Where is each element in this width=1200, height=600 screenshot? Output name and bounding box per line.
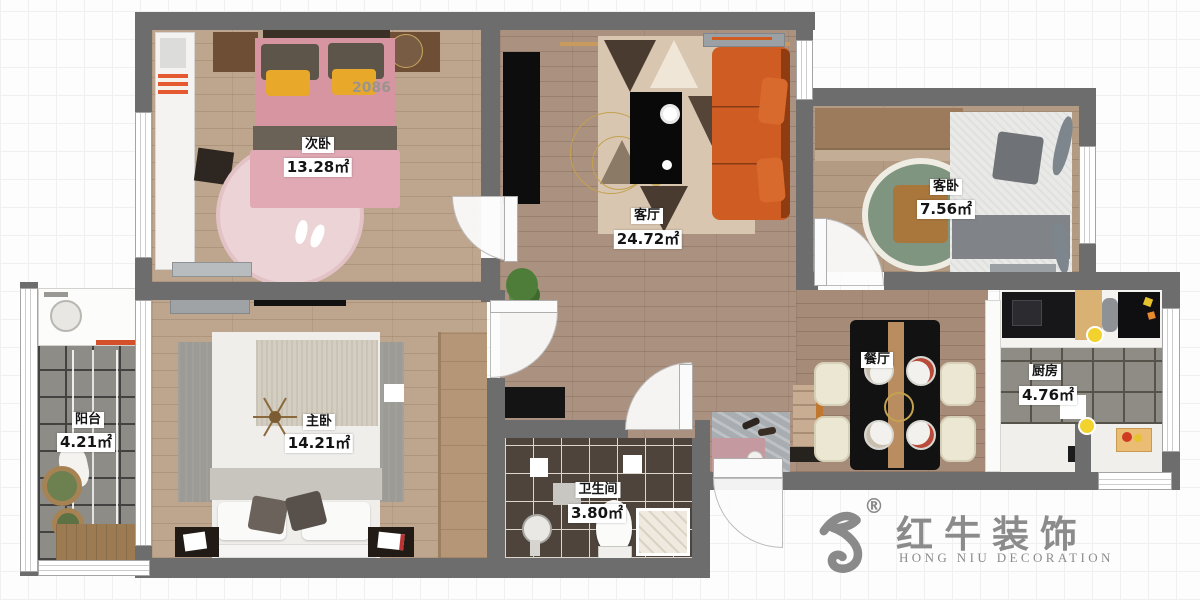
room-area-second-bedroom: 13.28㎡	[284, 158, 352, 177]
guest-desk	[815, 108, 963, 153]
rug-triangle-cream	[650, 40, 698, 88]
cushion-dark	[247, 495, 288, 535]
brand-name-en: HONG NIU DECORATION	[899, 550, 1114, 566]
room-area-kitchen: 4.76㎡	[1019, 386, 1077, 405]
rug-triangle-dark	[604, 40, 656, 92]
sliding-door-marker	[1078, 417, 1096, 435]
wall-bedrooms-sep	[152, 282, 481, 300]
window-balcony-left	[20, 288, 38, 572]
master-wardrobe	[438, 332, 487, 558]
room-area-guest: 7.56㎡	[917, 200, 975, 219]
faucet-icon	[44, 292, 68, 297]
food-icon	[1122, 432, 1132, 442]
white-chip	[384, 384, 404, 402]
wardrobe-box	[160, 38, 186, 68]
bath-mat	[530, 458, 548, 477]
wood-mat	[56, 524, 136, 560]
tv-panel	[503, 52, 540, 204]
door-leaf-master	[490, 300, 558, 313]
hall-plant-icon	[506, 268, 538, 302]
stove-burners	[1012, 300, 1042, 326]
door-leaf-second-bedroom	[504, 196, 518, 262]
book-icon	[183, 532, 207, 552]
wall-bath-top-right	[695, 420, 710, 438]
room-area-balcony: 4.21㎡	[57, 433, 115, 452]
room-label-bathroom: 卫生间	[575, 482, 620, 498]
window-bottom-right	[1098, 472, 1172, 490]
stove-strip	[96, 340, 138, 345]
room-label-guest: 客卧	[930, 179, 962, 195]
entry-door-arc	[713, 478, 783, 548]
dining-chair	[814, 416, 850, 462]
headboard	[218, 544, 376, 558]
window-living	[796, 40, 813, 100]
room-label-second-bedroom: 次卧	[302, 137, 334, 153]
console-accent	[712, 37, 772, 40]
laundry-sink-icon	[50, 300, 82, 332]
sliding-door-marker	[1086, 326, 1104, 344]
book-icon	[377, 532, 405, 551]
window-second-bedroom	[135, 112, 152, 258]
wall-bath-bottom	[498, 558, 710, 578]
room-area-living: 24.72㎡	[614, 230, 682, 249]
door-leaf-guest	[814, 218, 827, 286]
wall-master-left-top-stub	[135, 282, 152, 300]
window-balcony-bottom	[38, 560, 150, 576]
wall-bath-top-left	[498, 420, 628, 438]
room-label-master: 主卧	[303, 414, 335, 430]
guest-pillow	[992, 131, 1044, 185]
room-area-bathroom: 3.80㎡	[568, 504, 626, 523]
centerpiece-ring	[884, 392, 914, 422]
potted-plant-icon	[42, 466, 82, 506]
floor-plan-canvas: 2086	[0, 0, 1200, 600]
room-area-master: 14.21㎡	[285, 434, 353, 453]
room-label-dining: 餐厅	[861, 352, 893, 368]
radiator	[172, 262, 252, 277]
dining-chair	[940, 362, 976, 406]
shower-tray	[636, 508, 690, 556]
bed-width-dimension: 2086	[352, 80, 391, 96]
room-label-balcony: 阳台	[72, 412, 104, 428]
storage-box-icon	[158, 74, 188, 94]
window-balcony-master	[135, 300, 152, 546]
console-shelf	[703, 33, 785, 47]
wall-top	[135, 12, 815, 30]
wall-guest-top	[796, 88, 1096, 106]
small-appliance	[1102, 298, 1118, 332]
plate-icon	[864, 420, 894, 450]
washing-machine-top	[505, 387, 565, 418]
cup-icon	[662, 160, 672, 170]
door-leaf-bathroom	[679, 364, 693, 430]
plate-icon	[906, 356, 936, 386]
nightstand-left	[213, 32, 258, 72]
wall-sep-bedroom-living-upper	[481, 12, 500, 196]
plate-icon	[906, 420, 936, 450]
bath-mat	[623, 455, 642, 473]
cup-icon	[660, 104, 680, 124]
sink-pedestal	[530, 540, 540, 556]
kitchen-left-cabinet	[985, 300, 1001, 472]
window-guest	[1079, 146, 1096, 244]
wall-bath-right	[692, 438, 710, 558]
registered-mark: ®	[864, 494, 884, 518]
sofa-cushion	[756, 157, 786, 203]
entry-door-leaf	[713, 458, 783, 478]
window-kitchen	[1162, 308, 1180, 452]
dining-chair	[940, 416, 976, 462]
room-label-living: 客厅	[631, 208, 663, 224]
wall-master-hall-sep	[487, 378, 505, 558]
pillow-yellow	[266, 70, 310, 96]
brand-logo: ® 红牛装饰 HONG NIU DECORATION	[810, 490, 1190, 590]
fan-hub	[269, 411, 281, 423]
dining-chair	[814, 362, 850, 406]
guest-desk-shelf	[815, 150, 960, 161]
wall-guest-bottom-right	[884, 272, 1180, 290]
room-label-kitchen: 厨房	[1029, 364, 1061, 380]
wall-master-bottom	[135, 558, 510, 578]
sofa-cushion	[758, 77, 789, 125]
food-icon	[1134, 434, 1142, 442]
ceiling-fan-icon	[253, 395, 297, 439]
